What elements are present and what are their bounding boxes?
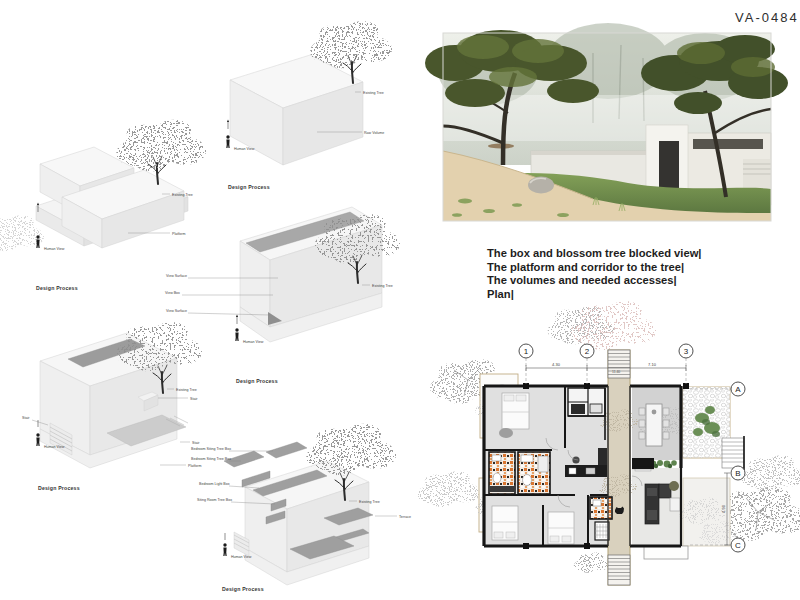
diagram-caption: Design Process [236, 378, 278, 384]
label-human-view: Human View [44, 445, 65, 449]
closet [568, 388, 605, 416]
label-bedroom-light-box: Bedroom Light Box [199, 482, 230, 486]
grid-bubble-b: B [735, 469, 740, 478]
label-view-box: View Box [165, 291, 180, 295]
dim-total: 11.40 [612, 370, 620, 374]
grid-bubble-c: C [735, 541, 741, 550]
diagram-caption: Design Process [228, 184, 270, 190]
description-block: The box and blossom tree blocked view| T… [487, 247, 702, 301]
plan-tree-icon [418, 471, 480, 507]
entry-bench [644, 546, 688, 559]
bathroom-2 [518, 452, 550, 494]
dim-1-2: 4.30 [552, 362, 561, 367]
armchair [670, 498, 680, 511]
label-stair: Stair [22, 416, 30, 420]
existing-tree-icon [306, 424, 396, 476]
grid-bubble-3: 3 [684, 347, 689, 356]
label-raw-volume: Raw Volume [364, 131, 384, 135]
media-wall [632, 458, 654, 468]
rug [499, 428, 513, 438]
exterior-render-image [443, 33, 771, 221]
label-bedroom-tree-box: Bedroom Siting Tree Box [191, 457, 231, 461]
description-line: The platform and corridor to the tree| [487, 261, 702, 275]
label-existing-tree: Existing Tree [359, 500, 380, 504]
human-figure [36, 420, 39, 446]
diagram-caption: Design Process [38, 485, 80, 491]
bed [492, 506, 518, 540]
presentation-board: { "board": { "code": "VA-0484" }, "descr… [0, 0, 800, 600]
diagram-caption: Design Process [222, 586, 264, 592]
patio-bottom-right [679, 478, 738, 546]
rock [528, 177, 554, 194]
description-line: The box and blossom tree blocked view| [487, 247, 702, 261]
grid-bubble-a: A [735, 385, 741, 394]
board-code: VA-0484 [735, 10, 799, 25]
grid-bubble-1: 1 [524, 347, 529, 356]
dim-b-c: 4.90 [721, 504, 726, 513]
plan-tree-icon [574, 553, 609, 573]
description-line: The volumes and needed accesses| [487, 274, 702, 288]
existing-tree-icon [116, 120, 206, 172]
existing-tree-icon [310, 21, 392, 68]
bed [548, 512, 574, 544]
label-siting-room-tree-box: Siting Room Tree Box [197, 498, 232, 502]
label-existing-tree: Existing Tree [363, 91, 384, 95]
corridor-stairs-bottom [608, 555, 630, 585]
diagram-exploded-program: Bedroom Siting Tree Box Bedroom Siting T… [185, 400, 415, 600]
label-human-view: Human View [243, 340, 264, 344]
diagram-caption: Design Process [36, 285, 78, 291]
label-human-view: Human View [231, 555, 252, 559]
side-table [669, 481, 679, 491]
label-existing-tree: Existing Tree [176, 388, 197, 392]
label-terrace: Terrace [399, 515, 411, 519]
plan-tree-icon [742, 455, 800, 491]
clerestory-window [693, 139, 763, 149]
bathroom-1 [489, 452, 515, 494]
label-existing-tree: Existing Tree [372, 284, 393, 288]
label-human-view: Human View [234, 147, 255, 151]
grid-bubble-2: 2 [585, 347, 590, 356]
label-human-view: Human View [44, 247, 65, 251]
label-view-surface: View Surface [166, 274, 187, 278]
floor-plan: 11.40 [440, 300, 800, 600]
label-bedroom-tree-box: Bedroom Siting Tree Box [191, 447, 231, 451]
dim-2-3: 7.10 [648, 362, 657, 367]
existing-tree-icon [116, 322, 202, 372]
human-figure [223, 533, 226, 556]
right-stairs [722, 436, 744, 470]
